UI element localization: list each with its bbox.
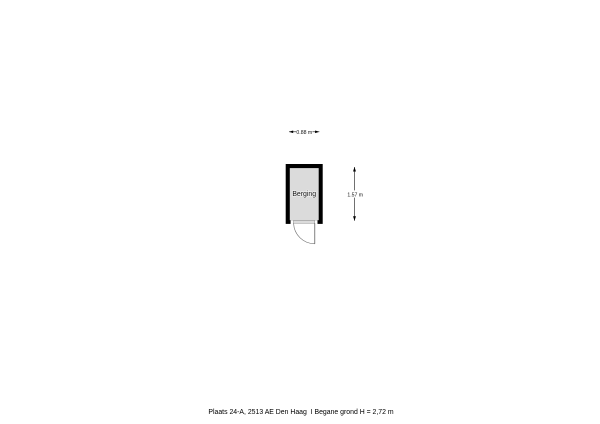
svg-text:Berging: Berging bbox=[292, 191, 316, 198]
svg-text:1.57 m: 1.57 m bbox=[347, 192, 363, 198]
svg-text:0.88 m: 0.88 m bbox=[296, 130, 312, 136]
svg-text:Plaats 24-A, 2513 AE Den Haag: Plaats 24-A, 2513 AE Den Haag I Begane g… bbox=[208, 409, 393, 416]
